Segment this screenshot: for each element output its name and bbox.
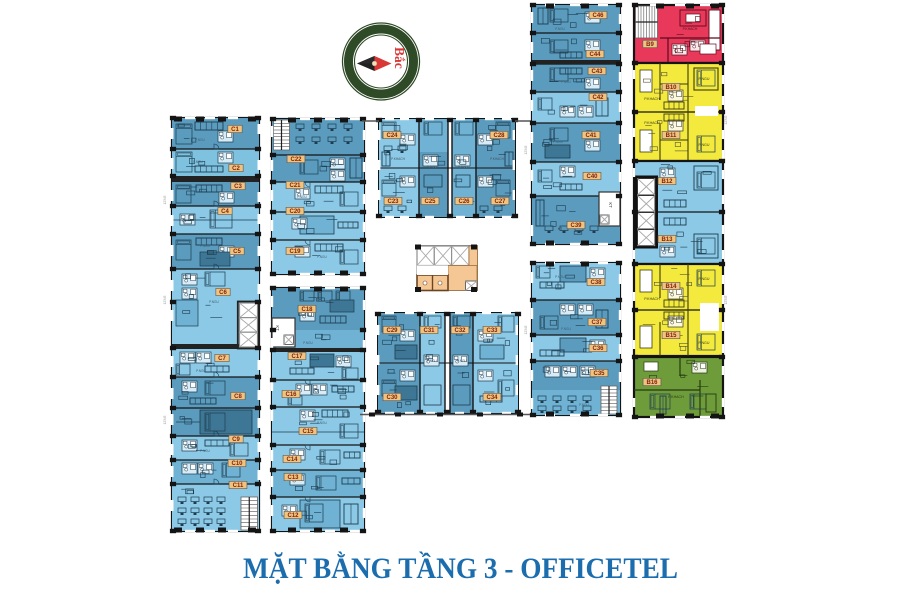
svg-text:C46: C46 (592, 13, 604, 19)
svg-text:12345: 12345 (724, 295, 728, 304)
svg-text:P.NGU: P.NGU (200, 449, 210, 453)
svg-text:C20: C20 (289, 209, 301, 215)
svg-text:C2: C2 (232, 166, 240, 172)
svg-text:C33: C33 (486, 328, 498, 334)
svg-text:C26: C26 (458, 199, 470, 205)
svg-text:P.NGU: P.NGU (317, 255, 327, 259)
svg-text:P.NGU: P.NGU (195, 138, 205, 142)
svg-text:C19: C19 (289, 249, 301, 255)
svg-text:C32: C32 (454, 328, 466, 334)
svg-text:C12: C12 (287, 513, 299, 519)
svg-text:P.NGU: P.NGU (209, 300, 219, 304)
svg-text:C42: C42 (592, 95, 604, 101)
svg-text:C8: C8 (234, 394, 242, 400)
svg-text:C36: C36 (592, 346, 604, 352)
svg-text:B15: B15 (665, 333, 677, 339)
svg-text:P.KHACH: P.KHACH (644, 297, 660, 301)
svg-text:C39: C39 (570, 223, 582, 229)
svg-text:C22: C22 (290, 157, 302, 163)
svg-text:C14: C14 (286, 457, 298, 463)
svg-text:P.NGU: P.NGU (555, 275, 565, 279)
svg-text:P.NGU: P.NGU (555, 27, 565, 31)
svg-text:C28: C28 (493, 133, 505, 139)
svg-text:C15: C15 (302, 429, 314, 435)
svg-text:12345: 12345 (163, 295, 167, 304)
svg-text:C1: C1 (231, 127, 239, 133)
svg-text:P.NGU: P.NGU (317, 421, 327, 425)
svg-text:B10: B10 (665, 85, 677, 91)
svg-text:KT: KT (558, 227, 562, 231)
svg-text:B9: B9 (646, 42, 654, 48)
svg-text:12345: 12345 (163, 195, 167, 204)
svg-text:P.NGU: P.NGU (561, 327, 571, 331)
svg-text:P.NGU: P.NGU (427, 359, 437, 363)
svg-text:P.KHACH: P.KHACH (490, 157, 504, 161)
svg-text:C5: C5 (233, 249, 241, 255)
svg-text:C9: C9 (232, 437, 240, 443)
svg-text:P.KHACH: P.KHACH (644, 121, 660, 125)
svg-text:12345: 12345 (163, 415, 167, 424)
svg-text:C41: C41 (585, 133, 597, 139)
svg-text:C37: C37 (591, 320, 603, 326)
svg-text:KT: KT (608, 202, 613, 208)
svg-text:C6: C6 (219, 290, 227, 296)
svg-text:P.NGU: P.NGU (699, 143, 710, 147)
svg-text:B13: B13 (661, 237, 673, 243)
svg-text:P.KHACH: P.KHACH (391, 157, 405, 161)
svg-text:B14: B14 (665, 284, 677, 290)
svg-text:P.NGU: P.NGU (196, 369, 206, 373)
svg-text:C43: C43 (591, 69, 603, 75)
svg-text:C18: C18 (301, 307, 313, 313)
svg-text:P.NGU: P.NGU (200, 244, 210, 248)
svg-text:C31: C31 (423, 328, 435, 334)
svg-text:C30: C30 (386, 395, 398, 401)
svg-text:C21: C21 (289, 183, 301, 189)
svg-text:C16: C16 (285, 392, 297, 398)
svg-text:C27: C27 (494, 199, 506, 205)
svg-text:P.NGU: P.NGU (579, 403, 589, 407)
svg-text:C34: C34 (486, 395, 498, 401)
svg-text:P.KHACH: P.KHACH (644, 97, 660, 101)
svg-text:C24: C24 (386, 133, 398, 139)
svg-text:P.NGU: P.NGU (553, 140, 563, 144)
svg-text:B12: B12 (661, 179, 673, 185)
svg-text:P.NGU: P.NGU (699, 77, 710, 81)
svg-text:P.NGU: P.NGU (458, 165, 468, 169)
svg-text:Bắc: Bắc (392, 47, 407, 69)
svg-text:12345: 12345 (724, 115, 728, 124)
svg-text:C7: C7 (218, 356, 226, 362)
svg-text:C44: C44 (589, 52, 601, 58)
svg-text:C35: C35 (593, 371, 605, 377)
svg-text:12345: 12345 (524, 145, 528, 154)
svg-text:C40: C40 (586, 174, 598, 180)
svg-text:P.NGU: P.NGU (297, 195, 307, 199)
svg-text:P.NGU: P.NGU (561, 80, 571, 84)
svg-text:P.NGU: P.NGU (699, 341, 710, 345)
svg-text:C4: C4 (221, 209, 229, 215)
svg-text:P.NGU: P.NGU (457, 359, 467, 363)
svg-text:C17: C17 (291, 354, 303, 360)
svg-text:B11: B11 (666, 133, 677, 139)
svg-text:B16: B16 (646, 380, 658, 386)
svg-text:C25: C25 (424, 199, 436, 205)
svg-text:P.KHACH: P.KHACH (668, 395, 684, 399)
svg-text:C29: C29 (386, 328, 398, 334)
svg-text:P.NGU: P.NGU (303, 341, 313, 345)
svg-text:12345: 12345 (524, 325, 528, 334)
svg-text:C13: C13 (287, 475, 299, 481)
svg-text:P.NGU: P.NGU (193, 160, 203, 164)
svg-text:C38: C38 (590, 280, 602, 286)
svg-text:C10: C10 (231, 461, 243, 467)
svg-text:P.NGU: P.NGU (427, 165, 437, 169)
svg-text:MẶT BẰNG TẦNG 3 - OFFICETEL: MẶT BẰNG TẦNG 3 - OFFICETEL (243, 550, 678, 586)
svg-text:P.KHACH: P.KHACH (683, 27, 698, 31)
svg-text:P.NGU: P.NGU (699, 277, 710, 281)
svg-text:C3: C3 (234, 184, 242, 190)
svg-text:C11: C11 (233, 483, 244, 489)
svg-text:C23: C23 (387, 199, 399, 205)
